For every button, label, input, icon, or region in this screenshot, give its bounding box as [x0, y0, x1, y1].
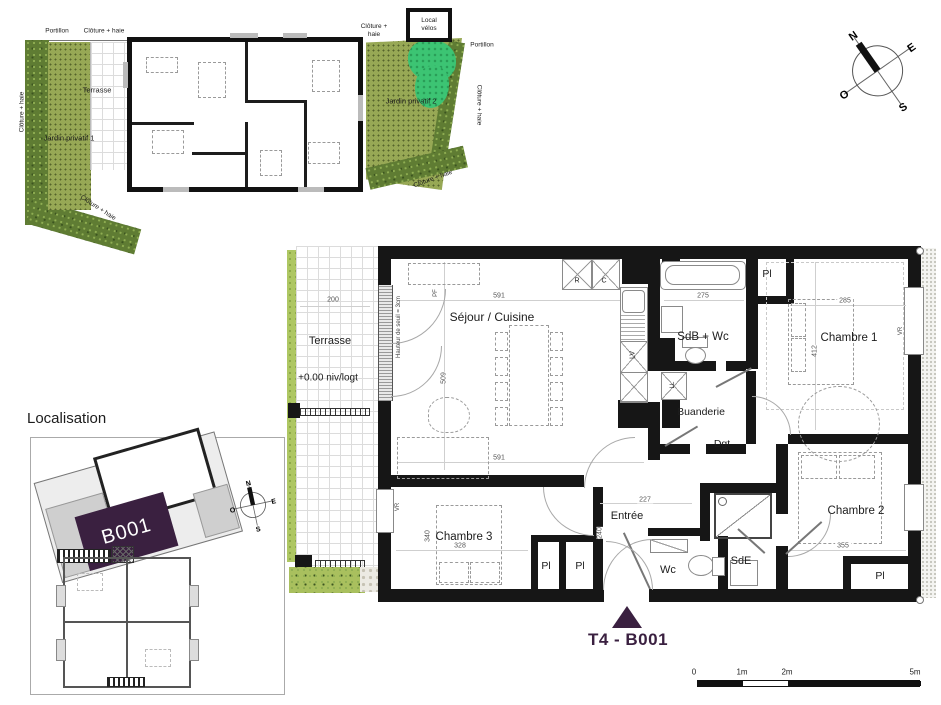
toilet-wc-bowl [688, 555, 714, 576]
wall-sdb-buanderie [726, 361, 746, 371]
entry-shelf [650, 539, 688, 553]
toilet-sdb-bowl [685, 347, 706, 364]
site-wall [132, 122, 194, 125]
jardin2-label: Jardin privatif 2 [386, 97, 437, 106]
chair [550, 407, 563, 426]
bldg-b-lobe [56, 639, 66, 661]
wall-bottom-right [649, 589, 921, 602]
mini-compass-o: O [229, 507, 236, 515]
closet-pl3: Pl [575, 560, 584, 572]
localisation-building-b [63, 557, 191, 688]
wall-sde-top [700, 483, 788, 493]
mini-compass-e: E [271, 498, 277, 506]
unit-b001-label: B001 [99, 513, 154, 549]
wall-bottom-left [378, 589, 604, 602]
cloture-right-label: Clôture + haie [476, 85, 483, 126]
jardin1-label: Jardin privatif 1 [44, 134, 95, 143]
terrace-fence-row [300, 408, 370, 416]
chair [550, 357, 563, 376]
unit-type-label: T4 - B001 [588, 630, 668, 650]
corner-marker-icon [916, 247, 924, 255]
site-wall [304, 100, 307, 187]
terrace-level-label: +0.00 niv/logt [298, 373, 358, 384]
scale-5m: 5m [909, 668, 920, 677]
closet-pl1: Pl [762, 268, 771, 280]
kitchen-drawers [621, 315, 645, 340]
kitchen-sink [622, 290, 645, 313]
dim-sdb-w: 275 [695, 293, 711, 300]
dim-entree-h: 240 [597, 527, 604, 539]
sofa [397, 437, 489, 479]
site-window [283, 33, 307, 38]
local-velos-box: Local vélos [406, 8, 452, 42]
fridge-label: R [574, 278, 579, 285]
dim-ch2-w: 355 [835, 543, 851, 550]
cloture-left-label: Clôture + haie [19, 92, 26, 133]
dim-line [300, 306, 370, 307]
compass-rose: N S E O [831, 20, 923, 120]
scale-2m: 2m [781, 668, 792, 677]
dim-sejour-w2: 591 [491, 455, 507, 462]
note-pf: PF [433, 289, 439, 297]
compass-e: E [905, 41, 918, 55]
site-terrasse-label: Terrasse [83, 86, 112, 95]
wall-right [908, 351, 921, 487]
north-needle-icon [247, 487, 255, 506]
bldg-b-furniture [77, 573, 103, 591]
wall-closets-div [559, 542, 566, 589]
washbasin-sdb [661, 306, 683, 333]
wall-closets-left [531, 542, 538, 589]
corner-marker-icon [916, 596, 924, 604]
wall-sejour-buanderie [648, 402, 660, 460]
portillon-right-label: Portillon [470, 42, 493, 49]
kitchen-unit [620, 372, 648, 402]
room-chambre3: Chambre 3 [436, 531, 493, 543]
scale-seg-white [743, 681, 788, 686]
site-furniture [146, 57, 178, 73]
pillow [801, 455, 837, 479]
chair [495, 357, 508, 376]
closet-pl4: Pl [875, 570, 884, 582]
localisation-title: Localisation [27, 410, 106, 427]
duct [622, 258, 648, 284]
wall-sde-left [700, 483, 710, 541]
localisation-compass: N S E O [228, 477, 278, 533]
scale-seg-black [788, 681, 921, 686]
scale-seg-black [698, 681, 743, 686]
wall-sdb-ch1 [746, 259, 758, 369]
fridge-box [562, 259, 593, 290]
wall-dgt-ch2 [776, 444, 788, 514]
window-ch2 [904, 484, 924, 531]
chair [495, 407, 508, 426]
site-furniture [152, 130, 184, 154]
wall-top [378, 246, 921, 259]
wall-wc-top [648, 528, 700, 536]
pillow [439, 562, 469, 583]
site-wall [245, 100, 307, 103]
room-chambre2: Chambre 2 [828, 505, 885, 517]
window-ch3 [376, 489, 394, 533]
chair [495, 382, 508, 401]
dim-ch1-w: 285 [837, 298, 853, 305]
closet-pl2: Pl [541, 560, 550, 572]
oven-box [591, 259, 620, 290]
scale-bar-track [697, 680, 920, 687]
dim-entree-w: 227 [637, 497, 653, 504]
door-arc [584, 437, 635, 488]
wall-pl4 [843, 556, 908, 564]
note-seuil: Hauteur de seuil = 3cm [396, 296, 402, 358]
dim-ch1-h: 412 [812, 345, 819, 357]
site-window [123, 62, 128, 88]
room-entree: Entrée [611, 510, 643, 522]
entrance-triangle-icon [612, 606, 642, 628]
room-buanderie: Buanderie [677, 406, 725, 418]
room-dgt: Dgt [714, 438, 730, 450]
garden-1 [48, 42, 91, 210]
site-furniture [260, 150, 282, 176]
site-window [163, 187, 189, 192]
window-ch1 [904, 287, 924, 355]
bldg-b-furniture [145, 649, 171, 667]
note-vr-left: VR [395, 503, 401, 511]
site-window [358, 95, 363, 121]
bldg-b-lobe [189, 585, 199, 607]
sideboard [408, 263, 480, 285]
site-building [127, 37, 363, 192]
dining-table [509, 325, 549, 426]
wall-right [908, 525, 921, 602]
site-furniture [198, 62, 226, 98]
wall-left [378, 246, 391, 288]
compass-n: N [847, 29, 860, 43]
bldg-b-wall [65, 621, 189, 623]
bldg-b-entry-hatch [107, 677, 145, 687]
room-chambre1: Chambre 1 [821, 332, 878, 344]
site-window [230, 33, 258, 38]
dim-ch3-w: 328 [452, 543, 468, 550]
chair [495, 332, 508, 351]
duct [618, 400, 648, 428]
toilet-wc-tank [712, 557, 725, 576]
site-wall [245, 42, 248, 100]
local-velos-label: Local vélos [415, 17, 443, 33]
dim-sejour-h: 509 [441, 372, 448, 384]
room-wc: Wc [660, 564, 676, 576]
washer-label: LL [670, 382, 676, 389]
chair [550, 382, 563, 401]
site-window [298, 187, 324, 192]
terrace-green-strip-bottom [289, 567, 365, 593]
cloture-right-top-label: Clôture + haie [356, 23, 392, 39]
door-arc-ch3 [543, 487, 594, 536]
wall-pl4 [843, 556, 851, 602]
dim-terrace: 200 [327, 297, 339, 304]
mini-compass-s: S [255, 526, 261, 533]
dim-ch3-h: 340 [425, 530, 432, 542]
bldg-b-lobe [189, 639, 199, 661]
compass-s: S [897, 101, 910, 115]
scale-1m: 1m [736, 668, 747, 677]
mini-compass-n: N [245, 480, 251, 488]
north-needle-icon [856, 42, 881, 73]
pillow [791, 338, 806, 372]
note-vr-right: VR [898, 327, 904, 335]
pillow [839, 455, 875, 479]
scale-0: 0 [692, 668, 696, 677]
pillow [470, 562, 500, 583]
bathtub-inner [665, 265, 740, 285]
wall-left [378, 401, 391, 491]
dim-sejour-w: 591 [491, 293, 507, 300]
portillon-left-label: Portillon [45, 28, 68, 35]
site-furniture [308, 142, 340, 164]
terrace-post [288, 403, 300, 418]
terrace-label: Terrasse [309, 335, 351, 347]
armchair [428, 397, 470, 433]
cloture-top-label: Clôture + haie [84, 28, 125, 35]
room-sdb: SdB + Wc [677, 331, 728, 343]
site-furniture [312, 60, 340, 92]
wall-left [378, 528, 391, 602]
hedge-left [25, 40, 49, 225]
wall-closets-top [531, 535, 593, 542]
dim-line [664, 300, 744, 301]
duct [655, 338, 675, 364]
floorplan-sheet: Local vélos Portillon Clôture + haie Clô… [0, 0, 941, 705]
room-sde: SdE [731, 555, 752, 567]
oven-label: C [601, 278, 606, 285]
dishwasher-label: LV [630, 351, 637, 359]
bldg-b-lobe [56, 585, 66, 607]
shower-drain-icon [718, 497, 727, 506]
ch1-rug [798, 386, 880, 462]
room-sejour: Séjour / Cuisine [450, 310, 535, 324]
site-wall [192, 152, 248, 155]
chair [550, 332, 563, 351]
pillow [791, 303, 806, 337]
